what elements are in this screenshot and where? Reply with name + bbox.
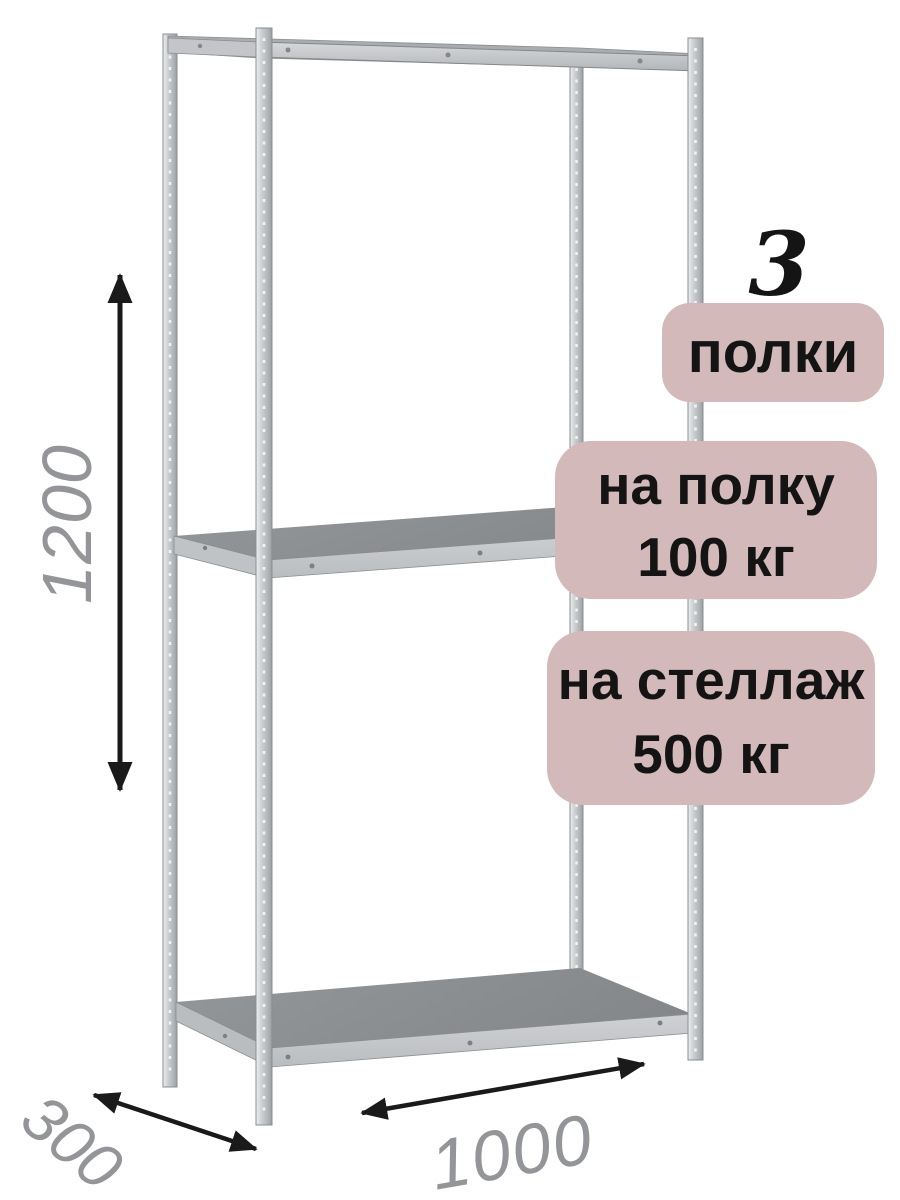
per-rack-load-line1: на стеллаж	[547, 643, 875, 717]
bottom-shelf	[176, 968, 692, 1067]
per-rack-load-line2: 500 кг	[547, 717, 875, 791]
height-dimension-label: 1200	[27, 364, 107, 684]
top-shelf	[168, 36, 700, 71]
per-shelf-load-line1: на полку	[555, 449, 877, 521]
shelving-rack-illustration	[0, 0, 900, 1200]
per-rack-load-badge: на стеллаж 500 кг	[547, 631, 875, 805]
per-shelf-load-line2: 100 кг	[555, 521, 877, 593]
product-image: 1200 300 1000 3 полки на полку 100 кг на…	[0, 0, 900, 1200]
per-shelf-load-badge: на полку 100 кг	[555, 441, 877, 599]
shelf-count-badge: полки	[662, 303, 884, 402]
shelf-count-number: 3	[700, 216, 858, 312]
